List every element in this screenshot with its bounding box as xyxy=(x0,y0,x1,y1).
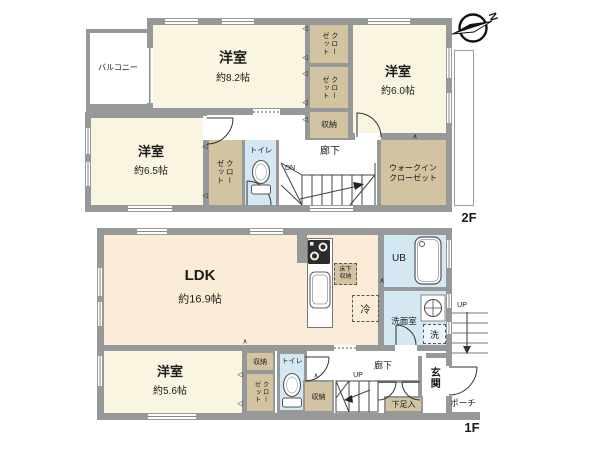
room-area: 約6.0帖 xyxy=(381,86,415,98)
toilet-label: トイレ xyxy=(250,146,273,155)
closet-label: クロー ゼット xyxy=(216,159,235,185)
compass-north-label: N xyxy=(485,11,500,23)
ext-stairs-up-label: UP xyxy=(457,302,467,310)
storage-1f-hall: 収納 xyxy=(303,380,334,413)
hallway-label: 廊下 xyxy=(374,361,392,372)
folding-door-marker: ∧ xyxy=(313,373,318,380)
folding-door-marker: ∧ xyxy=(379,278,384,285)
window xyxy=(86,162,90,186)
window xyxy=(165,19,198,24)
folding-door-marker: ◁ xyxy=(302,71,307,78)
folding-door-marker: ◁ xyxy=(237,401,242,408)
entrance-opening xyxy=(446,366,452,396)
stairs-up-label: UP xyxy=(353,372,363,380)
unit-bath-label: UB xyxy=(392,253,406,265)
window xyxy=(222,19,254,24)
closet-1f: クロー ゼット xyxy=(245,372,275,413)
window xyxy=(137,229,167,234)
closet-1f-label: クロー ゼット xyxy=(252,381,268,404)
window xyxy=(250,229,283,234)
storage-label: 収納 xyxy=(321,120,337,130)
porch-label: ポーチ xyxy=(450,398,476,408)
folding-door-marker: ◁ xyxy=(202,193,207,200)
window xyxy=(148,414,196,419)
washer-label: 洗 xyxy=(430,328,439,341)
window xyxy=(447,322,451,334)
window xyxy=(310,206,353,211)
room-name: 洋室 xyxy=(138,144,164,160)
wall xyxy=(426,353,446,358)
underfloor-storage-label: 床下 収納 xyxy=(339,267,351,280)
wall xyxy=(378,380,422,383)
room-area: 約8.2帖 xyxy=(216,73,250,85)
washer-space: 洗 xyxy=(423,324,446,344)
room-area: 約6.5帖 xyxy=(134,166,168,178)
window xyxy=(86,128,90,154)
shoe-cabinet-label: 下足入 xyxy=(392,399,416,410)
storage-1f-small: 収納 xyxy=(245,351,275,372)
door-opening xyxy=(203,116,209,140)
washroom-label: 洗面室 xyxy=(391,316,417,326)
room-name: 洋室 xyxy=(157,364,183,380)
entrance-door-arc xyxy=(449,367,477,395)
floor-label-1f: 1F xyxy=(464,420,479,436)
exterior-stairs xyxy=(452,312,488,354)
wall xyxy=(86,104,147,112)
refrigerator-space: 冷 xyxy=(352,295,379,322)
window xyxy=(368,19,410,24)
sliding-door xyxy=(253,109,280,115)
room-bedroom-6-5 xyxy=(91,118,203,205)
room-area: 約16.9帖 xyxy=(178,293,221,306)
door-opening xyxy=(395,345,417,351)
walk-in-closet-label: ウォークイン クローゼット xyxy=(389,163,437,182)
stairs-dn-label: DN xyxy=(285,165,295,173)
floor-label-2f: 2F xyxy=(461,210,476,226)
window xyxy=(98,302,102,326)
room-west-bedroom-8-2 xyxy=(153,25,305,108)
window xyxy=(98,268,102,296)
entrance-label: 玄関 xyxy=(427,367,440,389)
folding-door-marker: ◁ xyxy=(302,55,307,62)
folding-door-marker: ◁ xyxy=(302,26,307,33)
window xyxy=(128,206,172,211)
folding-door-marker: ∧ xyxy=(242,339,247,346)
wall xyxy=(452,412,480,420)
kitchen-counter xyxy=(307,238,333,328)
room-name: 洋室 xyxy=(219,50,247,67)
room-ldk xyxy=(104,235,378,345)
floor-plan: 床下 収納 冷 洗 収納 クロー ゼット 収納 下足入 xyxy=(0,0,600,450)
folding-door-marker: ∧ xyxy=(412,134,417,141)
folding-door-marker: ◁ xyxy=(302,117,307,124)
underfloor-storage: 床下 収納 xyxy=(334,263,357,285)
eaves-outline xyxy=(454,50,474,206)
shoe-cabinet: 下足入 xyxy=(384,396,423,413)
refrigerator-label: 冷 xyxy=(361,301,371,316)
folding-door-marker: ◁ xyxy=(202,144,207,151)
storage-1f-hall-label: 収納 xyxy=(312,392,326,402)
door-opening xyxy=(355,133,381,140)
hallway-2f-upper xyxy=(207,115,305,140)
closet-label: クロー ゼット xyxy=(320,76,338,100)
storage-1f-small-label: 収納 xyxy=(253,357,267,367)
wall xyxy=(297,235,307,263)
balcony-label: バルコニー xyxy=(98,63,138,73)
wall xyxy=(418,356,422,396)
door-opening xyxy=(334,345,356,351)
balcony-door xyxy=(147,48,153,103)
room-bedroom-5-6 xyxy=(104,351,242,413)
window xyxy=(447,294,451,308)
toilet-label: トイレ xyxy=(282,358,303,366)
window xyxy=(447,240,451,268)
window xyxy=(447,93,451,123)
folding-door-marker: ◁ xyxy=(237,372,242,379)
hallway-label: 廊下 xyxy=(320,146,340,158)
window xyxy=(98,356,102,386)
closet-label: クロー ゼット xyxy=(320,32,338,56)
room-area: 約5.6帖 xyxy=(153,386,187,398)
window xyxy=(447,48,451,78)
folding-door-marker: ◁ xyxy=(302,100,307,107)
room-name: 洋室 xyxy=(385,64,411,80)
room-name: LDK xyxy=(185,267,216,285)
